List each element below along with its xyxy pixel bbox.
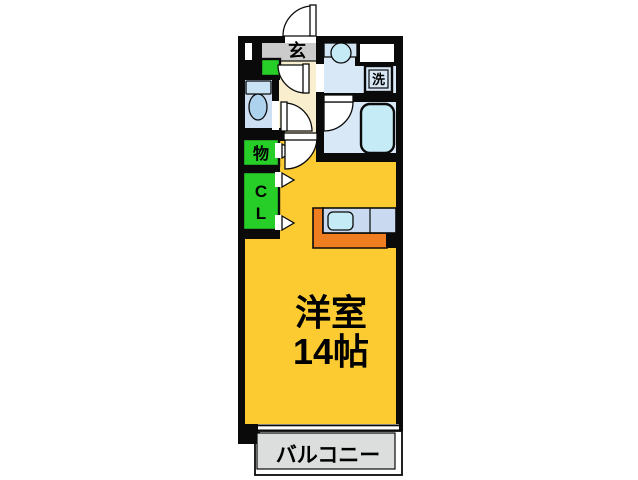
wall-bathroom-bottom — [316, 153, 403, 162]
washroom-door-leaf-icon — [303, 64, 309, 93]
bathtub-icon — [361, 104, 394, 153]
floorplan-svg: 洗 物 C L バルコニー 玄 洋室 — [0, 0, 638, 480]
entrance-door-leaf-icon — [310, 5, 316, 36]
toilet-door-leaf-icon — [281, 102, 287, 131]
balcony-label: バルコニー — [276, 444, 381, 467]
closet-label-l: L — [256, 204, 266, 223]
balcony-window-line-1 — [258, 425, 399, 427]
main-room-size: 14帖 — [293, 331, 369, 372]
toilet-tank-icon — [246, 81, 271, 94]
toilet-bowl-icon — [249, 94, 267, 120]
laundry-label: 洗 — [372, 72, 385, 87]
closet-opening-bottom — [275, 215, 282, 230]
kitchen-sink-icon — [328, 212, 353, 230]
shoe-box — [261, 59, 280, 76]
kitchen-end-block — [386, 233, 400, 248]
entrance-door-swing-icon — [283, 6, 313, 36]
toilet-doorway — [272, 101, 279, 130]
floorplan-image: 洗 物 C L バルコニー 玄 洋室 — [0, 0, 638, 480]
washroom-doorway — [316, 64, 324, 92]
outer-wall-left — [238, 36, 245, 444]
closet-opening-top — [275, 172, 282, 187]
pipe-space — [360, 44, 394, 62]
closet-label-c: C — [255, 182, 267, 201]
wall-wet-left — [316, 43, 324, 162]
entrance-label: 玄 — [288, 40, 306, 61]
vanity-sink-icon — [331, 43, 351, 63]
main-room-name: 洋室 — [295, 292, 367, 333]
bathroom-door-leaf-icon — [324, 95, 353, 102]
storage-label: 物 — [253, 144, 269, 163]
main-room-door-leaf-icon — [284, 133, 317, 140]
storage-opening — [275, 143, 282, 158]
